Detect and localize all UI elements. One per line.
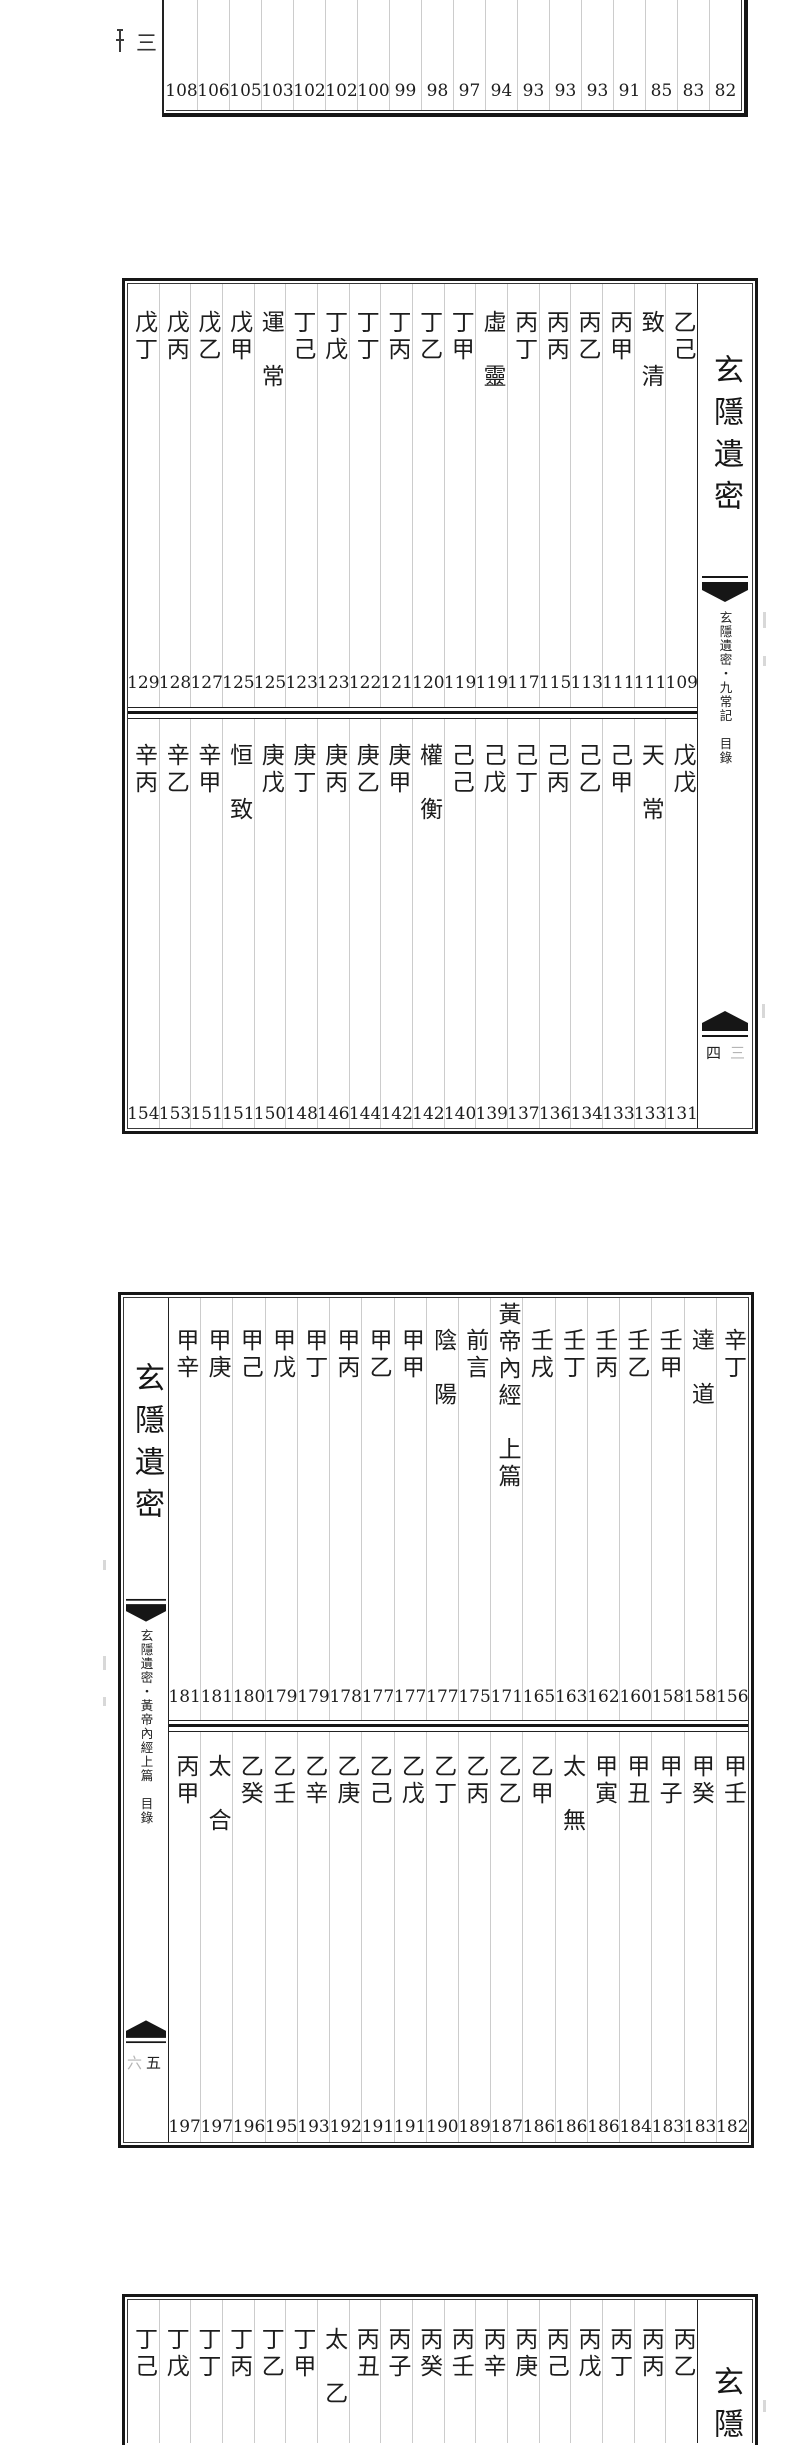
toc-entry-title: 己丁 bbox=[510, 743, 536, 797]
toc-entry-title: 前言 bbox=[461, 1328, 487, 1382]
toc-entry-title: 乙丙 bbox=[461, 1754, 487, 1808]
toc-entry-page: 178 bbox=[329, 1687, 361, 1707]
bleed-artifact bbox=[762, 1004, 765, 1018]
toc-column: 庚丁 148 bbox=[285, 719, 317, 1128]
toc-column: 93 bbox=[581, 0, 613, 110]
toc-entry-page: 162 bbox=[587, 1687, 619, 1707]
toc-entry-title: 壬乙 bbox=[622, 1328, 648, 1382]
toc-column: 98 bbox=[421, 0, 453, 110]
book-title: 玄隱遺密 bbox=[124, 1362, 168, 1530]
toc-entry-title: 乙丁 bbox=[429, 1754, 455, 1808]
toc-column: 庚乙 144 bbox=[349, 719, 381, 1128]
toc-entry-page: 111 bbox=[602, 673, 634, 693]
toc-column: 致 清 111 bbox=[634, 284, 666, 707]
toc-column: 達 道 158 bbox=[684, 1298, 716, 1720]
toc-entry-title: 丙乙 bbox=[574, 310, 600, 364]
toc-column: 甲丑 184 bbox=[619, 1732, 651, 2142]
toc-entry-page: 133 bbox=[634, 1104, 666, 1124]
toc-entry-title: 乙壬 bbox=[268, 1754, 294, 1808]
toc-entry-title: 天 常 bbox=[637, 743, 663, 824]
toc-column: 庚甲 142 bbox=[380, 719, 412, 1128]
toc-entry-title: 丙丙 bbox=[542, 310, 568, 364]
toc-entry-page: 183 bbox=[652, 2117, 684, 2137]
toc-entry-page: 142 bbox=[412, 1104, 444, 1124]
toc-column: 94 bbox=[485, 0, 517, 110]
toc-entry-title: 甲丁 bbox=[300, 1328, 326, 1382]
toc-entry-page: 98 bbox=[427, 81, 449, 101]
toc-column: 97 bbox=[453, 0, 485, 110]
toc-column: 辛甲 151 bbox=[190, 719, 222, 1128]
toc-column: 甲乙 177 bbox=[361, 1298, 393, 1720]
toc-column: 乙甲 186 bbox=[522, 1732, 554, 2142]
page-half-divider bbox=[128, 707, 697, 719]
toc-entry-title: 陰 陽 bbox=[429, 1328, 455, 1409]
toc-entry-title: 庚丙 bbox=[320, 743, 346, 797]
toc-entry-title: 丙丑 bbox=[352, 2327, 378, 2381]
toc-entry-page: 99 bbox=[395, 81, 417, 101]
toc-entry-page: 82 bbox=[715, 81, 737, 101]
toc-entry-title: 丙乙 bbox=[669, 2327, 695, 2381]
toc-entry-page: 163 bbox=[555, 1687, 587, 1707]
toc-entry-page: 177 bbox=[426, 1687, 458, 1707]
toc-entry-title: 丁戊 bbox=[320, 310, 346, 364]
toc-entry-page: 123 bbox=[285, 673, 317, 693]
toc-column: 己戊 139 bbox=[475, 719, 507, 1128]
fishtail-ornament-icon bbox=[126, 1597, 166, 1627]
toc-entry-page: 123 bbox=[317, 673, 349, 693]
toc-grid-lower: 丙甲 197 太 合 197 乙癸 196 bbox=[169, 1732, 748, 2142]
toc-entry-page: 177 bbox=[394, 1687, 426, 1707]
spine-column: 玄隱遺密 玄隱遺密・九常記 目錄 四 三 bbox=[697, 284, 752, 1128]
toc-column: 庚戊 150 bbox=[254, 719, 286, 1128]
toc-entry-title: 戊戊 bbox=[669, 743, 695, 797]
fishtail-ornament-icon bbox=[126, 2015, 166, 2045]
toc-entry-title: 己丙 bbox=[542, 743, 568, 797]
toc-entry-title: 丁丁 bbox=[193, 2327, 219, 2381]
toc-entry-title: 丁乙 bbox=[415, 310, 441, 364]
toc-column: 壬丙 162 bbox=[587, 1298, 619, 1720]
toc-column: 丁己 bbox=[128, 2300, 159, 2443]
toc-column: 丁戊 123 bbox=[317, 284, 349, 707]
toc-entry-title: 丙甲 bbox=[605, 310, 631, 364]
toc-entry-title: 達 道 bbox=[687, 1328, 713, 1409]
toc-column: 甲丙 178 bbox=[329, 1298, 361, 1720]
toc-entry-page: 156 bbox=[716, 1687, 748, 1707]
toc-column: 戊乙 127 bbox=[190, 284, 222, 707]
toc-entry-title: 丙子 bbox=[383, 2327, 409, 2381]
toc-entry-page: 190 bbox=[426, 2117, 458, 2137]
toc-entry-title: 太 合 bbox=[204, 1754, 230, 1835]
toc-entry-page: 177 bbox=[362, 1687, 394, 1707]
toc-entry-page: 85 bbox=[651, 81, 673, 101]
toc-entry-page: 197 bbox=[168, 2117, 200, 2137]
fishtail-ornament-icon bbox=[702, 576, 748, 606]
toc-column: 丙丁 117 bbox=[507, 284, 539, 707]
toc-entry-title: 甲子 bbox=[655, 1754, 681, 1808]
toc-column: 戊丙 128 bbox=[159, 284, 191, 707]
toc-entry-page: 133 bbox=[602, 1104, 634, 1124]
toc-entry-page: 151 bbox=[190, 1104, 222, 1124]
toc-entry-page: 137 bbox=[507, 1104, 539, 1124]
running-title: 玄隱遺密・黃帝內經上篇 目錄 bbox=[137, 1629, 156, 1825]
toc-entry-page: 136 bbox=[539, 1104, 571, 1124]
toc-column: 甲癸 183 bbox=[684, 1732, 716, 2142]
toc-entry-title: 黃帝內經 上篇 bbox=[494, 1302, 520, 1491]
toc-entry-page: 182 bbox=[716, 2117, 748, 2137]
toc-column: 陰 陽 177 bbox=[426, 1298, 458, 1720]
toc-column: 甲丁 179 bbox=[297, 1298, 329, 1720]
toc-column: 戊戊 131 bbox=[665, 719, 697, 1128]
toc-column: 丙癸 bbox=[412, 2300, 444, 2443]
toc-entry-title: 丙戊 bbox=[574, 2327, 600, 2381]
toc-entry-page: 186 bbox=[587, 2117, 619, 2137]
toc-entry-page: 181 bbox=[168, 1687, 200, 1707]
toc-entry-page: 146 bbox=[317, 1104, 349, 1124]
toc-entry-title: 己己 bbox=[447, 743, 473, 797]
toc-column: 乙庚 192 bbox=[329, 1732, 361, 2142]
toc-entry-title: 辛丁 bbox=[719, 1328, 745, 1382]
toc-entry-page: 93 bbox=[555, 81, 577, 101]
toc-column: 93 bbox=[549, 0, 581, 110]
toc-entry-page: 158 bbox=[684, 1687, 716, 1707]
toc-column: 85 bbox=[645, 0, 677, 110]
toc-entry-title: 丙己 bbox=[542, 2327, 568, 2381]
toc-entry-page: 105 bbox=[229, 81, 261, 101]
toc-entry-title: 丙辛 bbox=[479, 2327, 505, 2381]
toc-entry-page: 183 bbox=[684, 2117, 716, 2137]
toc-entry-title: 丙壬 bbox=[447, 2327, 473, 2381]
toc-entry-page: 93 bbox=[523, 81, 545, 101]
toc-entry-title: 乙庚 bbox=[332, 1754, 358, 1808]
toc-entry-page: 97 bbox=[459, 81, 481, 101]
toc-entry-title: 權 衡 bbox=[415, 743, 441, 824]
bleed-artifact bbox=[763, 612, 766, 628]
toc-column: 103 bbox=[261, 0, 293, 110]
cut-edge-numeral: 三 bbox=[136, 27, 157, 57]
toc-entry-page: 106 bbox=[197, 81, 229, 101]
toc-entry-title: 虛 靈 bbox=[479, 310, 505, 391]
toc-entry-page: 150 bbox=[254, 1104, 286, 1124]
toc-entry-title: 乙甲 bbox=[526, 1754, 552, 1808]
toc-entry-title: 辛丙 bbox=[130, 743, 156, 797]
bleed-folio-number: 三 bbox=[730, 1042, 745, 1063]
cut-glyph-fragment bbox=[119, 29, 121, 52]
toc-entry-page: 121 bbox=[380, 673, 412, 693]
toc-column: 乙戊 191 bbox=[394, 1732, 426, 2142]
toc-column: 99 bbox=[389, 0, 421, 110]
toc-entry-title: 致 清 bbox=[637, 310, 663, 391]
toc-column: 丁丙 bbox=[222, 2300, 254, 2443]
toc-grid-partial: 108 106 105 103 102 102 bbox=[166, 0, 742, 111]
folio-sheet-neijing: 玄隱遺密 玄隱遺密・黃帝內經上篇 目錄 六 五 bbox=[118, 1292, 754, 2148]
toc-column: 己丁 137 bbox=[507, 719, 539, 1128]
toc-column: 甲庚 181 bbox=[200, 1298, 232, 1720]
toc-entry-page: 186 bbox=[523, 2117, 555, 2137]
toc-grid-lower: 辛丙 154 辛乙 153 辛甲 151 bbox=[128, 719, 697, 1128]
toc-column: 100 bbox=[357, 0, 389, 110]
toc-entry-title: 庚甲 bbox=[383, 743, 409, 797]
toc-column: 丙乙 113 bbox=[570, 284, 602, 707]
toc-entry-title: 甲乙 bbox=[365, 1328, 391, 1382]
toc-column: 乙乙 187 bbox=[490, 1732, 522, 2142]
toc-entry-page: 129 bbox=[127, 673, 159, 693]
toc-entry-page: 191 bbox=[362, 2117, 394, 2137]
toc-column: 108 bbox=[166, 0, 197, 110]
toc-entry-title: 庚乙 bbox=[352, 743, 378, 797]
toc-column: 甲子 183 bbox=[651, 1732, 683, 2142]
toc-column: 丁己 123 bbox=[285, 284, 317, 707]
toc-column: 己乙 134 bbox=[570, 719, 602, 1128]
spine-column: 玄隱遺密 玄隱遺密・黃帝內經上篇 目錄 六 五 bbox=[124, 1298, 169, 2142]
toc-column: 己己 140 bbox=[444, 719, 476, 1128]
toc-column: 甲己 180 bbox=[232, 1298, 264, 1720]
toc-entry-title: 乙己 bbox=[669, 310, 695, 364]
toc-column: 91 bbox=[613, 0, 645, 110]
bleed-artifact bbox=[103, 1656, 106, 1670]
toc-column: 太 乙 bbox=[317, 2300, 349, 2443]
toc-entry-page: 140 bbox=[444, 1104, 476, 1124]
toc-entry-title: 壬戌 bbox=[526, 1328, 552, 1382]
toc-column: 虛 靈 119 bbox=[475, 284, 507, 707]
toc-entry-title: 戊甲 bbox=[225, 310, 251, 364]
toc-entry-page: 115 bbox=[539, 673, 571, 693]
toc-entry-page: 195 bbox=[265, 2117, 297, 2137]
toc-entry-title: 乙己 bbox=[365, 1754, 391, 1808]
toc-column: 辛丙 154 bbox=[128, 719, 159, 1128]
toc-entry-title: 丙庚 bbox=[510, 2327, 536, 2381]
toc-entry-title: 丁戊 bbox=[162, 2327, 188, 2381]
toc-column: 戊甲 125 bbox=[222, 284, 254, 707]
toc-entry-title: 甲寅 bbox=[590, 1754, 616, 1808]
toc-column: 己丙 136 bbox=[539, 719, 571, 1128]
toc-column: 丙甲 197 bbox=[169, 1732, 200, 2142]
toc-entry-page: 102 bbox=[325, 81, 357, 101]
toc-entry-page: 180 bbox=[233, 1687, 265, 1707]
toc-entry-title: 丁己 bbox=[288, 310, 314, 364]
toc-entry-page: 148 bbox=[285, 1104, 317, 1124]
folio-number: 五 bbox=[146, 2052, 161, 2073]
bleed-folio-number: 六 bbox=[127, 2052, 142, 2073]
toc-entry-title: 甲己 bbox=[236, 1328, 262, 1382]
toc-column: 運 常 125 bbox=[254, 284, 286, 707]
toc-entry-title: 戊丁 bbox=[130, 310, 156, 364]
toc-entry-title: 壬丙 bbox=[590, 1328, 616, 1382]
toc-column: 丙乙 bbox=[665, 2300, 697, 2443]
toc-entry-title: 甲戊 bbox=[268, 1328, 294, 1382]
toc-entry-title: 丁丙 bbox=[383, 310, 409, 364]
bleed-artifact bbox=[103, 1560, 106, 1570]
toc-entry-title: 乙乙 bbox=[494, 1754, 520, 1808]
toc-column: 丙丙 bbox=[634, 2300, 666, 2443]
toc-column: 壬丁 163 bbox=[555, 1298, 587, 1720]
spine-column: 玄隱 bbox=[697, 2300, 752, 2443]
toc-column: 壬甲 158 bbox=[651, 1298, 683, 1720]
page-half-divider bbox=[169, 1720, 748, 1732]
toc-entry-title: 己甲 bbox=[605, 743, 631, 797]
toc-entry-page: 109 bbox=[666, 673, 698, 693]
toc-entry-page: 102 bbox=[293, 81, 325, 101]
folio-sheet-partial-top: 108 106 105 103 102 102 bbox=[162, 0, 748, 117]
toc-column: 丙己 bbox=[539, 2300, 571, 2443]
toc-column: 前言 175 bbox=[458, 1298, 490, 1720]
toc-entry-page: 193 bbox=[297, 2117, 329, 2137]
toc-entry-page: 153 bbox=[159, 1104, 191, 1124]
book-title: 玄隱 bbox=[703, 2366, 747, 2445]
toc-entry-page: 93 bbox=[587, 81, 609, 101]
toc-entry-title: 庚戊 bbox=[257, 743, 283, 797]
toc-column: 丁乙 120 bbox=[412, 284, 444, 707]
toc-column: 丙丑 bbox=[349, 2300, 381, 2443]
folio-sheet-partial-bottom: 丁己 丁戊 丁丁 丁丙 bbox=[122, 2294, 758, 2445]
fishtail-ornament-icon bbox=[702, 1007, 748, 1037]
bleed-artifact bbox=[763, 2400, 766, 2412]
toc-column: 丙甲 111 bbox=[602, 284, 634, 707]
toc-entry-page: 158 bbox=[652, 1687, 684, 1707]
toc-column: 辛乙 153 bbox=[159, 719, 191, 1128]
toc-column: 甲甲 177 bbox=[394, 1298, 426, 1720]
toc-entry-title: 丁丁 bbox=[352, 310, 378, 364]
toc-entry-title: 壬丁 bbox=[558, 1328, 584, 1382]
toc-entry-page: 171 bbox=[491, 1687, 523, 1707]
toc-entry-page: 151 bbox=[222, 1104, 254, 1124]
toc-column: 丁戊 bbox=[159, 2300, 191, 2443]
toc-entry-page: 131 bbox=[666, 1104, 698, 1124]
toc-grid-upper: 甲辛 181 甲庚 181 甲己 180 bbox=[169, 1298, 748, 1720]
toc-column: 丙戊 bbox=[570, 2300, 602, 2443]
folio-sheet-jiuchangji: 戊丁 129 戊丙 128 戊乙 127 bbox=[122, 278, 758, 1134]
toc-column: 天 常 133 bbox=[634, 719, 666, 1128]
toc-entry-title: 壬甲 bbox=[655, 1328, 681, 1382]
toc-entry-title: 甲癸 bbox=[687, 1754, 713, 1808]
toc-entry-title: 己乙 bbox=[574, 743, 600, 797]
toc-entry-page: 83 bbox=[683, 81, 705, 101]
toc-entry-title: 戊丙 bbox=[162, 310, 188, 364]
toc-column: 102 bbox=[325, 0, 357, 110]
toc-entry-page: 154 bbox=[127, 1104, 159, 1124]
toc-entry-title: 丙甲 bbox=[171, 1754, 197, 1808]
toc-entry-page: 187 bbox=[491, 2117, 523, 2137]
toc-column: 丁丁 122 bbox=[349, 284, 381, 707]
toc-entry-page: 134 bbox=[571, 1104, 603, 1124]
folio-number: 四 bbox=[706, 1042, 721, 1063]
toc-column: 庚丙 146 bbox=[317, 719, 349, 1128]
toc-column: 黃帝內經 上篇 171 bbox=[490, 1298, 522, 1720]
toc-entry-title: 太 乙 bbox=[320, 2327, 346, 2408]
toc-entry-page: 179 bbox=[297, 1687, 329, 1707]
toc-entry-page: 189 bbox=[458, 2117, 490, 2137]
toc-column: 83 bbox=[677, 0, 709, 110]
running-title: 玄隱遺密・九常記 目錄 bbox=[716, 611, 735, 765]
toc-entry-page: 127 bbox=[190, 673, 222, 693]
toc-entry-title: 丁丙 bbox=[225, 2327, 251, 2381]
toc-column: 太 合 197 bbox=[200, 1732, 232, 2142]
toc-column: 105 bbox=[229, 0, 261, 110]
toc-column: 恒 致 151 bbox=[222, 719, 254, 1128]
toc-entry-page: 191 bbox=[394, 2117, 426, 2137]
toc-entry-title: 乙癸 bbox=[236, 1754, 262, 1808]
toc-entry-title: 太 無 bbox=[558, 1754, 584, 1835]
toc-column: 丙壬 bbox=[444, 2300, 476, 2443]
bleed-artifact bbox=[763, 656, 766, 666]
toc-entry-page: 91 bbox=[619, 81, 641, 101]
toc-entry-page: 125 bbox=[222, 673, 254, 693]
toc-entry-page: 196 bbox=[233, 2117, 265, 2137]
toc-column: 丁丙 121 bbox=[380, 284, 412, 707]
toc-entry-title: 甲丙 bbox=[332, 1328, 358, 1382]
toc-entry-page: 144 bbox=[349, 1104, 381, 1124]
toc-entry-title: 己戊 bbox=[479, 743, 505, 797]
toc-entry-title: 丙癸 bbox=[415, 2327, 441, 2381]
toc-column: 戊丁 129 bbox=[128, 284, 159, 707]
toc-entry-page: 181 bbox=[201, 1687, 233, 1707]
toc-entry-title: 乙戊 bbox=[397, 1754, 423, 1808]
toc-column: 辛丁 156 bbox=[716, 1298, 748, 1720]
toc-column: 乙己 191 bbox=[361, 1732, 393, 2142]
toc-column: 丙丁 bbox=[602, 2300, 634, 2443]
toc-entry-page: 103 bbox=[261, 81, 293, 101]
toc-entry-title: 丙丙 bbox=[637, 2327, 663, 2381]
toc-entry-title: 甲甲 bbox=[397, 1328, 423, 1382]
toc-entry-title: 甲辛 bbox=[171, 1328, 197, 1382]
toc-column: 甲寅 186 bbox=[587, 1732, 619, 2142]
toc-column: 乙辛 193 bbox=[297, 1732, 329, 2142]
book-title: 玄隱遺密 bbox=[703, 354, 747, 522]
toc-column: 壬戌 165 bbox=[522, 1298, 554, 1720]
toc-entry-page: 122 bbox=[349, 673, 381, 693]
toc-entry-title: 甲庚 bbox=[204, 1328, 230, 1382]
toc-entry-page: 197 bbox=[201, 2117, 233, 2137]
toc-entry-page: 125 bbox=[254, 673, 286, 693]
toc-entry-page: 94 bbox=[491, 81, 513, 101]
toc-column: 乙丙 189 bbox=[458, 1732, 490, 2142]
toc-entry-title: 甲丑 bbox=[622, 1754, 648, 1808]
toc-entry-page: 119 bbox=[476, 673, 508, 693]
toc-column: 甲戊 179 bbox=[265, 1298, 297, 1720]
toc-entry-title: 庚丁 bbox=[288, 743, 314, 797]
toc-entry-page: 111 bbox=[634, 673, 666, 693]
toc-column: 權 衡 142 bbox=[412, 719, 444, 1128]
toc-entry-title: 丁甲 bbox=[288, 2327, 314, 2381]
toc-entry-page: 160 bbox=[619, 1687, 651, 1707]
toc-entry-title: 運 常 bbox=[257, 310, 283, 391]
scanned-book-page: 三 108 106 105 103 bbox=[0, 0, 800, 2445]
toc-entry-page: 186 bbox=[555, 2117, 587, 2137]
toc-grid-upper: 戊丁 129 戊丙 128 戊乙 127 bbox=[128, 284, 697, 707]
toc-entry-page: 184 bbox=[619, 2117, 651, 2137]
toc-entry-title: 辛甲 bbox=[193, 743, 219, 797]
toc-entry-page: 119 bbox=[444, 673, 476, 693]
toc-column: 丁乙 bbox=[254, 2300, 286, 2443]
toc-column: 丙子 bbox=[380, 2300, 412, 2443]
toc-entry-title: 丁己 bbox=[130, 2327, 156, 2381]
toc-entry-page: 175 bbox=[458, 1687, 490, 1707]
toc-column: 甲辛 181 bbox=[169, 1298, 200, 1720]
toc-entry-page: 120 bbox=[412, 673, 444, 693]
toc-entry-title: 丁乙 bbox=[257, 2327, 283, 2381]
toc-column: 乙己 109 bbox=[665, 284, 697, 707]
toc-column: 乙壬 195 bbox=[265, 1732, 297, 2142]
toc-column: 丙辛 bbox=[475, 2300, 507, 2443]
toc-entry-page: 142 bbox=[380, 1104, 412, 1124]
toc-entry-title: 丙丁 bbox=[510, 310, 536, 364]
toc-column: 106 bbox=[197, 0, 229, 110]
toc-grid-upper: 丁己 丁戊 丁丁 丁丙 bbox=[128, 2300, 697, 2443]
toc-column: 93 bbox=[517, 0, 549, 110]
toc-entry-page: 139 bbox=[476, 1104, 508, 1124]
toc-entry-title: 戊乙 bbox=[193, 310, 219, 364]
toc-column: 丁甲 bbox=[285, 2300, 317, 2443]
toc-column: 甲壬 182 bbox=[716, 1732, 748, 2142]
